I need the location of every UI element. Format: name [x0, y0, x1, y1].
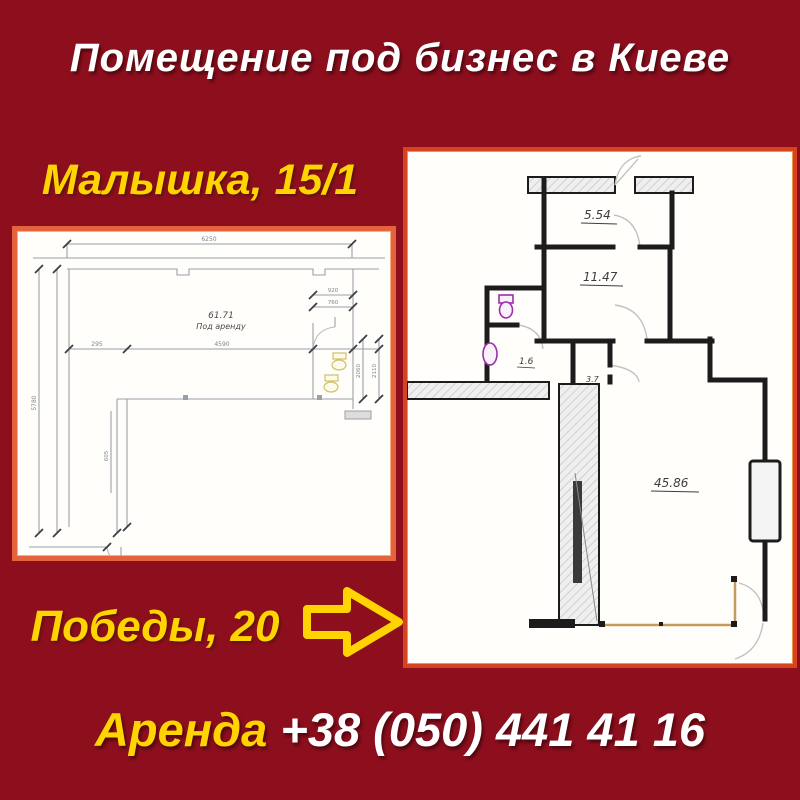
dimension-ticks — [35, 240, 383, 551]
arrow-right-icon — [303, 583, 405, 661]
room-label-4586: 45.86 — [654, 476, 689, 490]
room-label-554: 5.54 — [584, 208, 611, 222]
floor-plan-left-panel: 61.71 Под аренду 6250 5780 295 4590 920 … — [12, 226, 396, 561]
dim-inner: 605 — [104, 450, 110, 461]
dim-left: 5780 — [31, 395, 38, 410]
page-title: Помещение под бизнес в Киеве — [0, 36, 800, 81]
dim-mid-left: 295 — [91, 341, 103, 348]
room-label-1147: 11.47 — [583, 270, 618, 284]
dim-bath-w2: 760 — [328, 300, 339, 306]
hatched-wall-blocks — [528, 177, 693, 193]
sink-icon — [483, 343, 497, 365]
room-label-37: 3.7 — [586, 375, 600, 384]
phone-number: +38 (050) 441 41 16 — [280, 703, 705, 756]
floor-plan-right-image: 5.54 11.47 1.6 3.7 45.86 — [407, 151, 793, 664]
wall-foot — [529, 619, 575, 628]
ad-background: Помещение под бизнес в Киеве Малышка, 15… — [0, 0, 800, 800]
rent-label: Аренда — [95, 703, 267, 756]
toilet-icon — [324, 353, 346, 392]
dim-bath-w: 920 — [328, 288, 339, 294]
door-arcs — [519, 156, 764, 659]
structural-walls — [407, 382, 599, 625]
door-sill — [345, 411, 371, 419]
area-sublabel: Под аренду — [196, 322, 246, 331]
wall-slit — [573, 481, 582, 583]
area-label: 61.71 — [208, 311, 234, 321]
address-pobedy: Победы, 20 — [10, 602, 300, 652]
dim-mid: 4590 — [214, 341, 229, 348]
room-label-16: 1.6 — [519, 357, 534, 367]
footer-contact: Аренда +38 (050) 441 41 16 — [0, 702, 800, 757]
floor-plan-left-image: 61.71 Под аренду 6250 5780 295 4590 920 … — [17, 231, 391, 556]
address-malyshka: Малышка, 15/1 — [0, 156, 400, 205]
dim-top: 6250 — [201, 236, 216, 243]
dim-bath-h: 2060 — [356, 364, 362, 378]
demolition-line — [599, 576, 737, 627]
floor-plan-right-panel: 5.54 11.47 1.6 3.7 45.86 — [403, 147, 797, 668]
window-symbol — [750, 461, 780, 541]
toilet-icon — [499, 295, 513, 318]
dim-bath-h2: 2110 — [372, 364, 378, 378]
